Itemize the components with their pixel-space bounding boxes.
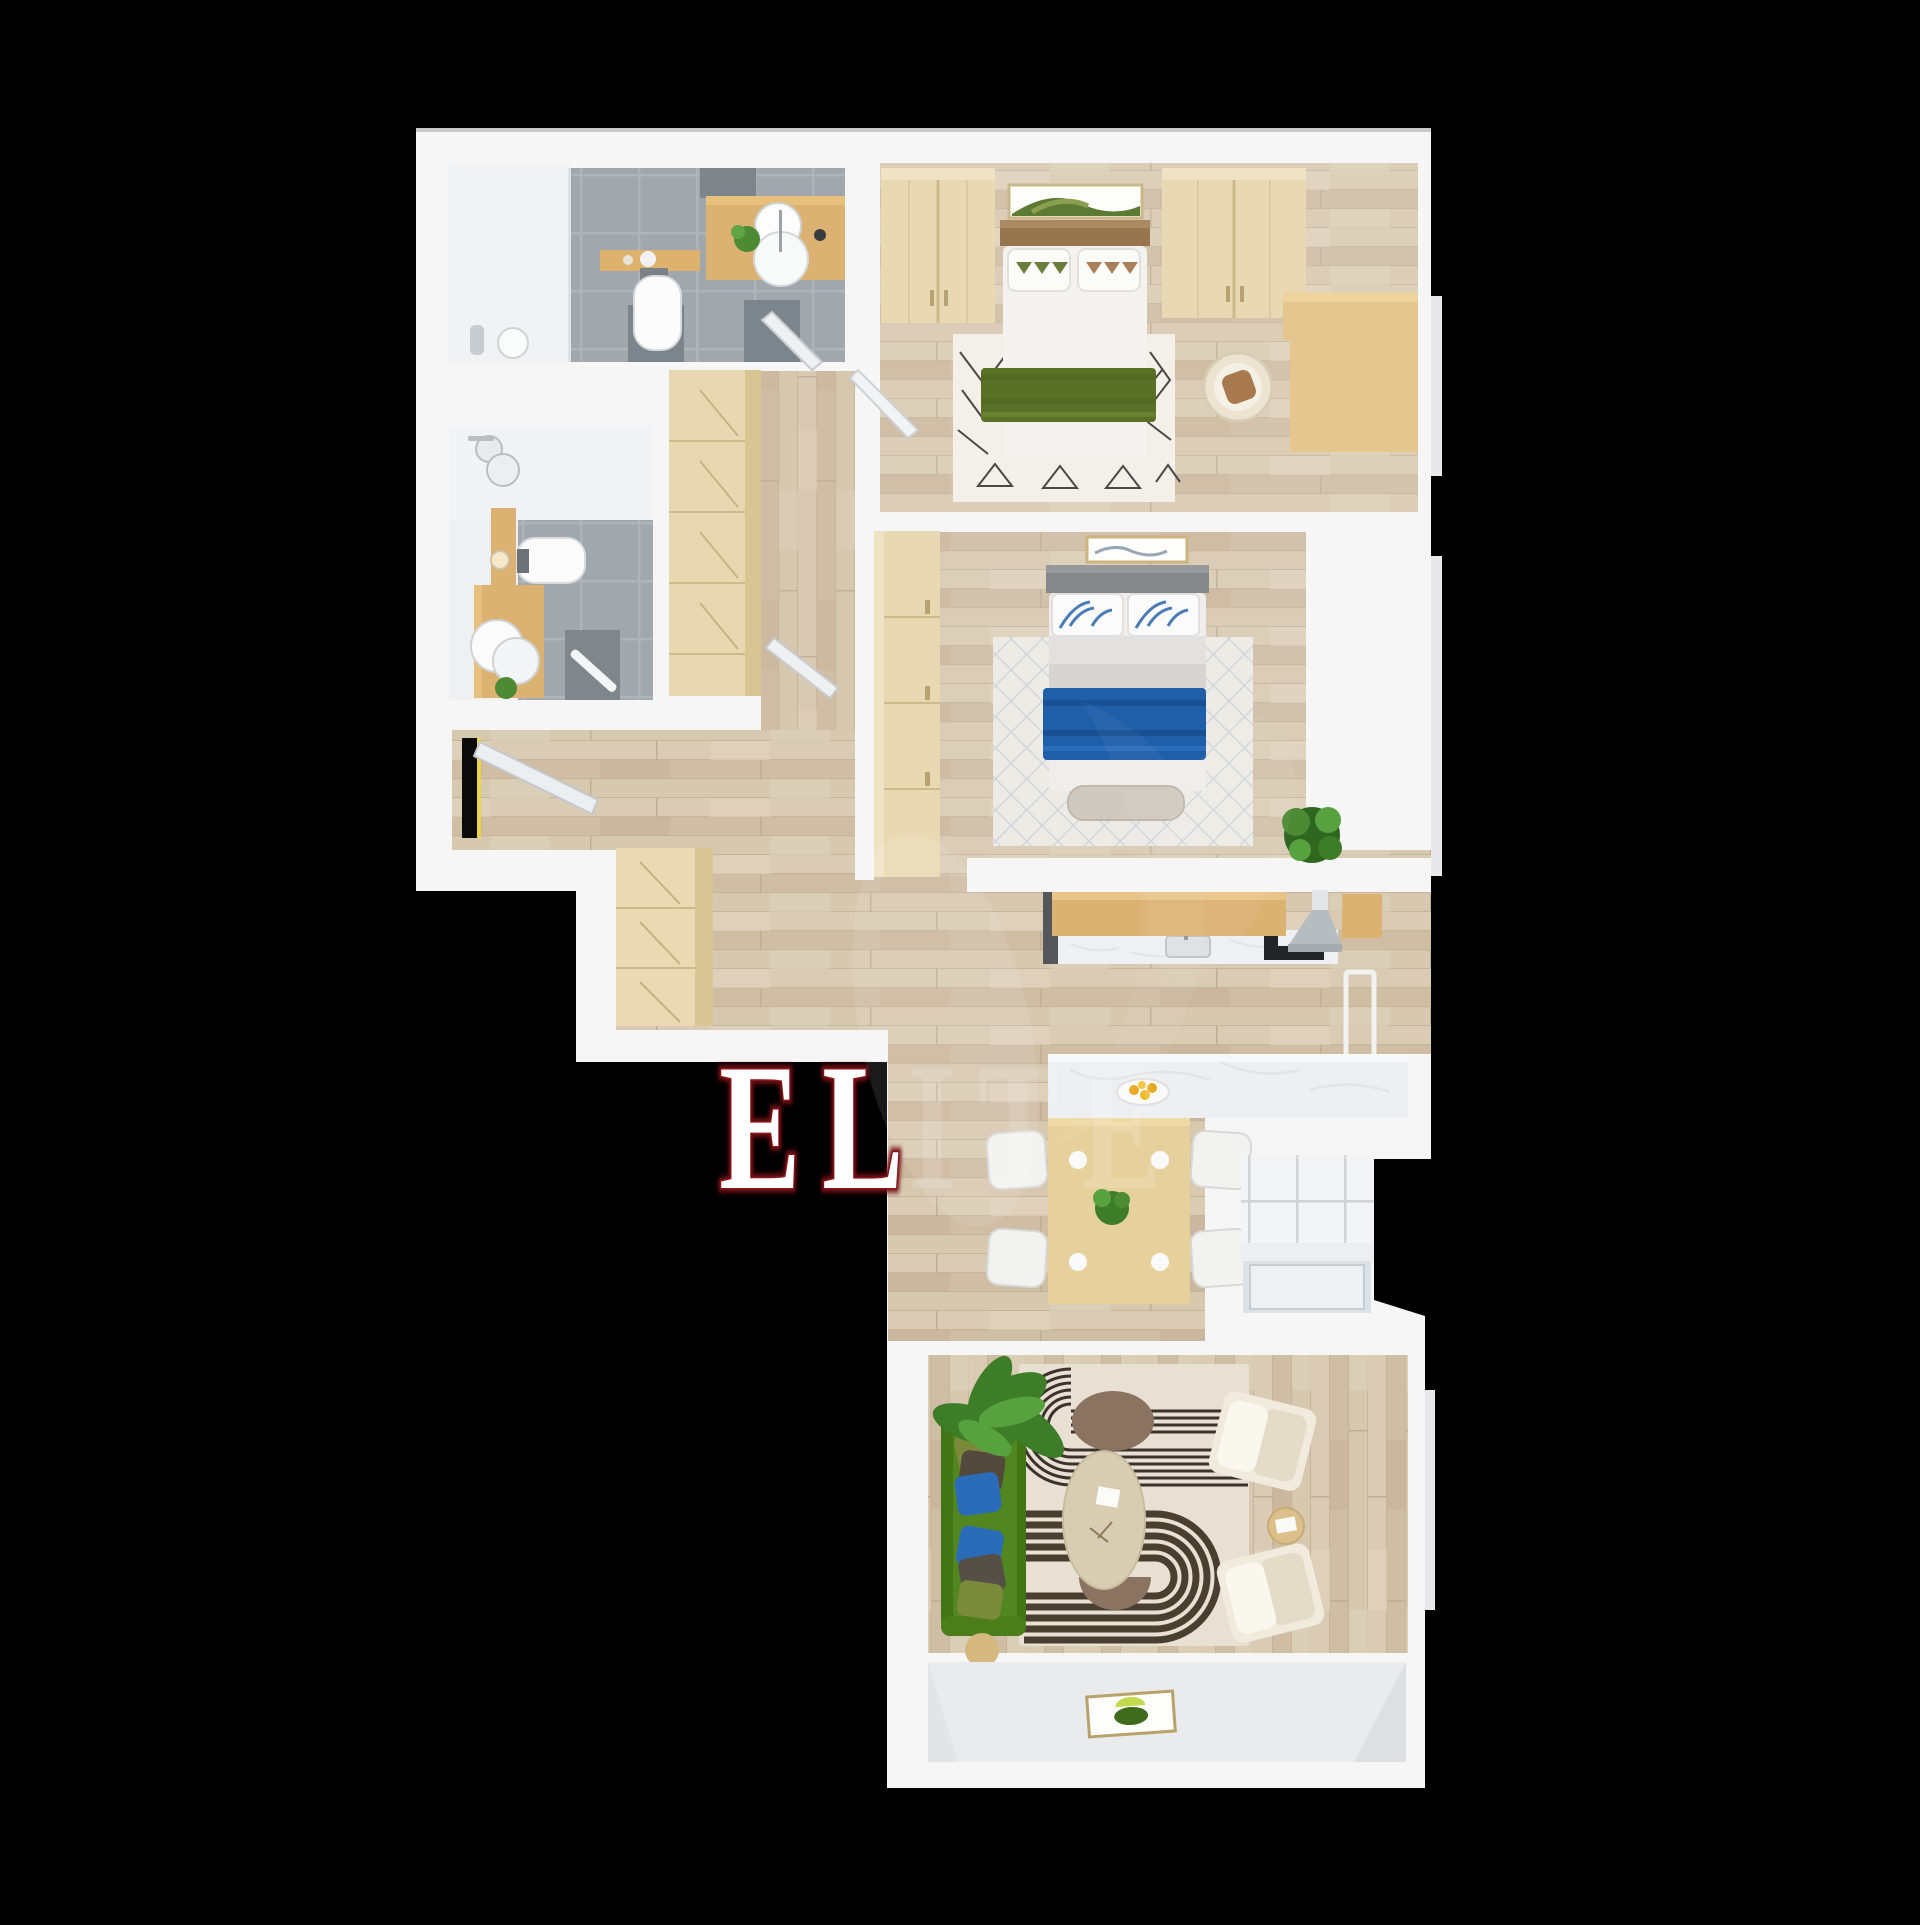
svg-text:EL: EL — [719, 1027, 925, 1228]
svg-text:ITE: ITE — [909, 1027, 1184, 1228]
